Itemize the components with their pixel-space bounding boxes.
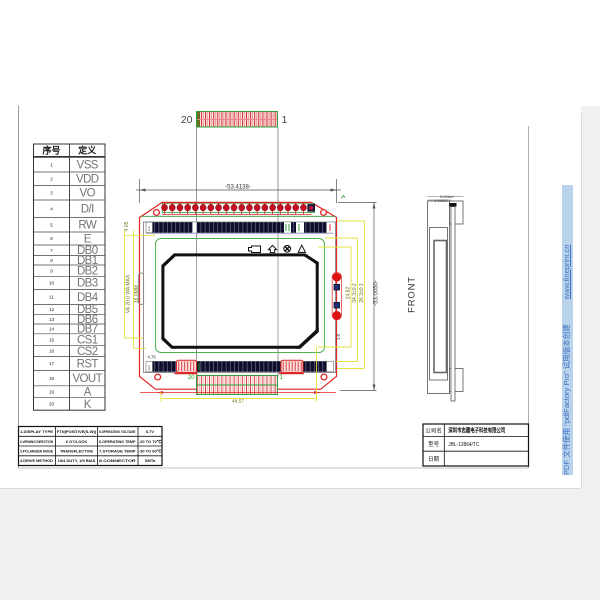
svg-text:4.4MAX: 4.4MAX	[434, 199, 448, 203]
svg-text:17: 17	[49, 361, 55, 366]
svg-text:-53.0050-: -53.0050-	[374, 280, 380, 306]
svg-text:6.7V: 6.7V	[146, 429, 155, 434]
svg-text:1: 1	[148, 227, 151, 233]
svg-text:1: 1	[50, 162, 53, 167]
svg-text:CS2: CS2	[77, 346, 98, 358]
svg-text:20: 20	[49, 402, 55, 407]
svg-text:10: 10	[49, 281, 55, 286]
svg-text:34.3±0.2: 34.3±0.2	[352, 283, 358, 303]
svg-text:DB3: DB3	[77, 278, 98, 290]
svg-text:序号: 序号	[42, 145, 60, 156]
svg-text:6.OPERATING TEMP: 6.OPERATING TEMP	[99, 439, 136, 444]
svg-text:4.76: 4.76	[148, 355, 157, 360]
svg-text:DB2: DB2	[77, 265, 98, 277]
svg-text:VA 20.0 WA MAX: VA 20.0 WA MAX	[126, 274, 132, 313]
svg-text:型号: 型号	[428, 440, 440, 448]
svg-text:9: 9	[50, 268, 53, 273]
svg-text:日期: 日期	[428, 456, 440, 463]
svg-text:VSS: VSS	[77, 160, 99, 172]
svg-text:1: 1	[282, 114, 288, 126]
svg-text:4: 4	[50, 206, 53, 211]
svg-text:深圳市志趣电子科技有限公司: 深圳市志趣电子科技有限公司	[448, 426, 505, 434]
svg-text:K: K	[84, 399, 92, 411]
svg-text:1: 1	[148, 366, 151, 372]
svg-text:TRANSFLECTIVE: TRANSFLECTIVE	[60, 449, 93, 454]
svg-text:8.CONNECTOR: 8.CONNECTOR	[99, 458, 136, 463]
svg-text:24.82: 24.82	[346, 287, 352, 300]
svg-text:RW: RW	[78, 220, 96, 232]
svg-text:1.0: 1.0	[336, 333, 341, 340]
svg-text:公司名: 公司名	[425, 426, 442, 434]
svg-text:6: 6	[50, 236, 53, 241]
svg-text:定义: 定义	[77, 145, 97, 156]
svg-text:RST: RST	[77, 358, 99, 370]
svg-text:1/64 DUTY, 1/9 BIAS: 1/64 DUTY, 1/9 BIAS	[58, 458, 96, 463]
svg-text:26.3±0.1: 26.3±0.1	[359, 283, 365, 303]
svg-text:A: A	[84, 387, 92, 399]
svg-text:7.STORAGE TEMP: 7.STORAGE TEMP	[99, 449, 136, 454]
svg-text:3: 3	[50, 190, 53, 195]
svg-text:VOUT: VOUT	[72, 373, 102, 385]
svg-text:2: 2	[50, 176, 53, 181]
svg-text:16.0MM: 16.0MM	[134, 285, 140, 303]
svg-text:-53.4138-: -53.4138-	[225, 185, 251, 191]
svg-text:DB4: DB4	[77, 292, 99, 304]
svg-text:6 O'CLOCK: 6 O'CLOCK	[66, 439, 88, 444]
svg-text:1.DISPLAY TYPE: 1.DISPLAY TYPE	[20, 429, 53, 434]
svg-text:D/I: D/I	[81, 204, 94, 216]
svg-text:E: E	[84, 233, 92, 245]
svg-text:SMTa: SMTa	[145, 458, 156, 463]
svg-text:4.DRIVE METHOD: 4.DRIVE METHOD	[20, 458, 53, 463]
svg-text:19: 19	[49, 389, 55, 394]
svg-text:15: 15	[49, 337, 55, 342]
svg-text:JBL-12864/TC: JBL-12864/TC	[448, 442, 479, 448]
svg-text:20: 20	[181, 114, 193, 126]
svg-text:CS1: CS1	[77, 335, 98, 347]
svg-text:12: 12	[49, 307, 55, 312]
svg-text:-30 TO 80℃: -30 TO 80℃	[139, 449, 162, 454]
svg-text:14: 14	[49, 327, 55, 332]
svg-text:18: 18	[49, 376, 55, 381]
svg-text:FTN(POSITIVE(S-W)): FTN(POSITIVE(S-W))	[57, 429, 97, 434]
svg-text:FRONT: FRONT	[407, 276, 418, 313]
svg-text:5.OPERATING VOLTAGE: 5.OPERATING VOLTAGE	[99, 429, 136, 434]
svg-text:VDD: VDD	[76, 174, 99, 186]
svg-text:8: 8	[50, 258, 53, 263]
svg-text:7: 7	[50, 248, 53, 253]
svg-text:-20 TO 70℃: -20 TO 70℃	[139, 439, 162, 444]
svg-text:20: 20	[188, 375, 195, 381]
svg-text:3.POLARIZER MODE: 3.POLARIZER MODE	[20, 449, 53, 454]
svg-text:4.05: 4.05	[124, 221, 130, 231]
svg-text:16: 16	[49, 349, 55, 354]
svg-text:11: 11	[49, 295, 54, 300]
svg-text:48.57: 48.57	[232, 399, 244, 405]
svg-text:VO: VO	[80, 188, 96, 200]
svg-text:13: 13	[49, 317, 55, 322]
svg-text:2.VIEWING DIRECTION: 2.VIEWING DIRECTION	[20, 439, 53, 444]
svg-text:5: 5	[50, 222, 53, 227]
